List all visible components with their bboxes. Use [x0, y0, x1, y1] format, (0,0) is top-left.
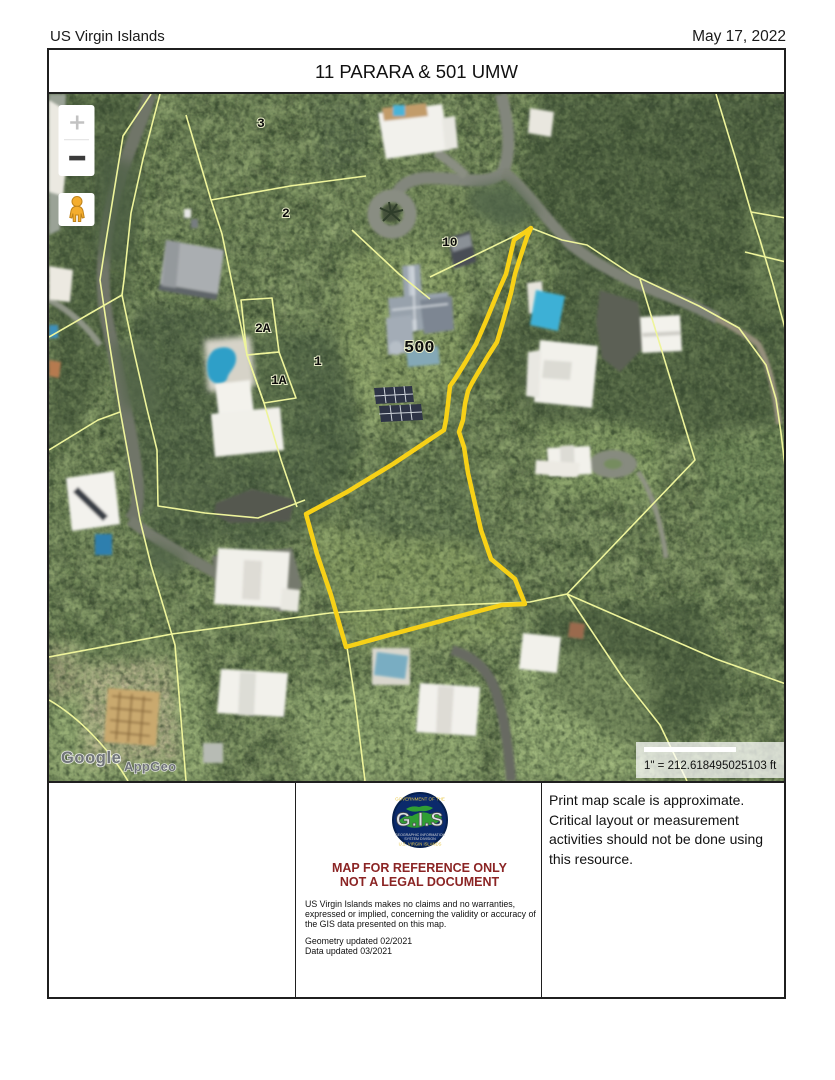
svg-text:G.I.S: G.I.S [395, 810, 443, 831]
svg-text:GOVERNMENT OF THE: GOVERNMENT OF THE [395, 797, 445, 802]
svg-text:SYSTEM DIVISION: SYSTEM DIVISION [404, 837, 436, 841]
svg-text:U.S. VIRGIN ISLANDS: U.S. VIRGIN ISLANDS [398, 842, 441, 847]
